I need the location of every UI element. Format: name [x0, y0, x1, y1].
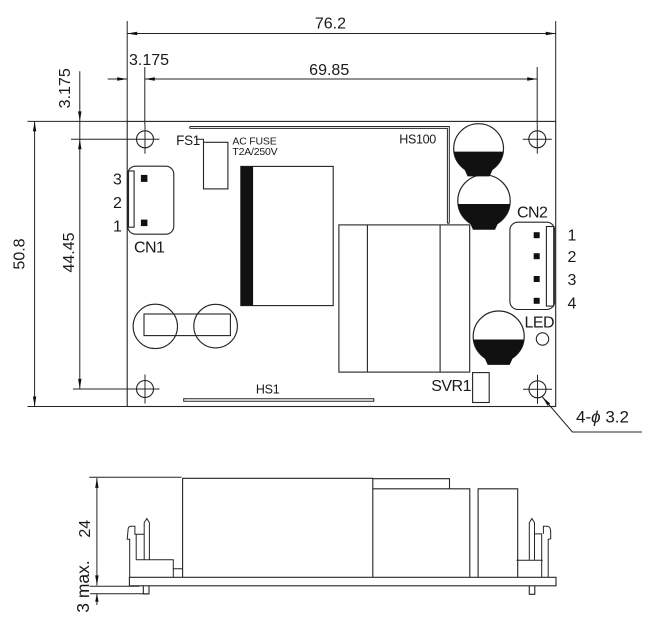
svg-text:2: 2 — [113, 195, 122, 212]
svg-text:4: 4 — [568, 296, 577, 313]
svg-text:CN2: CN2 — [517, 205, 548, 222]
svg-text:HS100: HS100 — [399, 132, 436, 146]
svg-text:1: 1 — [113, 219, 122, 236]
svg-text:2: 2 — [568, 249, 577, 266]
svg-text:3: 3 — [113, 171, 122, 188]
svg-text:4-ϕ 3.2: 4-ϕ 3.2 — [576, 408, 629, 427]
svg-text:44.45: 44.45 — [61, 232, 78, 272]
svg-text:CN1: CN1 — [134, 240, 165, 257]
svg-text:69.85: 69.85 — [309, 62, 349, 79]
svg-text:24: 24 — [77, 520, 94, 538]
svg-text:3.175: 3.175 — [129, 52, 169, 69]
svg-text:FS1: FS1 — [176, 133, 200, 148]
svg-text:T2A/250V: T2A/250V — [232, 146, 277, 158]
svg-text:SVR1: SVR1 — [431, 378, 471, 395]
svg-text:3 max.: 3 max. — [73, 560, 93, 613]
svg-text:HS1: HS1 — [256, 382, 280, 396]
svg-text:3.175: 3.175 — [57, 68, 74, 108]
svg-text:1: 1 — [568, 227, 577, 244]
svg-text:3: 3 — [568, 272, 577, 289]
svg-text:LED: LED — [524, 315, 554, 332]
svg-text:50.8: 50.8 — [11, 238, 28, 269]
svg-text:76.2: 76.2 — [315, 15, 346, 32]
